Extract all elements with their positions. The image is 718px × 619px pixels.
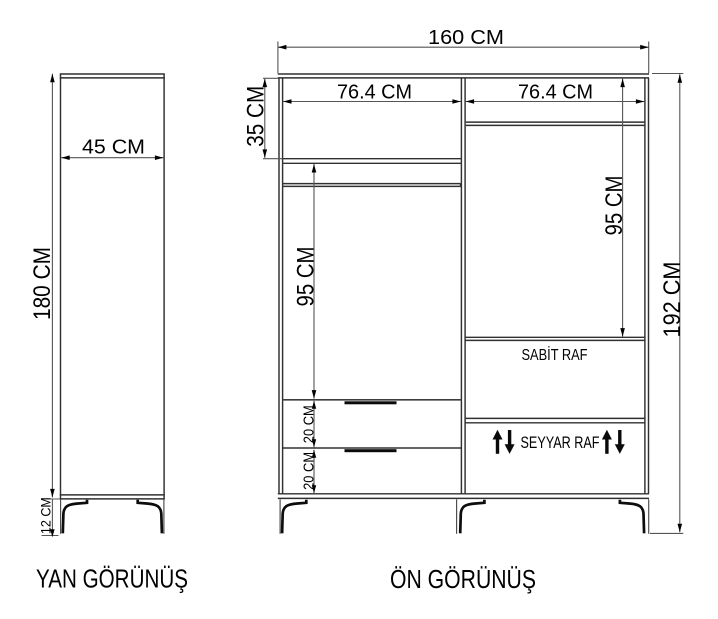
svg-text:SABİT RAF: SABİT RAF (522, 345, 588, 364)
svg-text:95 CM: 95 CM (293, 247, 320, 307)
svg-text:YAN GÖRÜNÜŞ: YAN GÖRÜNÜŞ (36, 564, 188, 594)
svg-text:ÖN GÖRÜNÜŞ: ÖN GÖRÜNÜŞ (390, 564, 536, 594)
svg-text:95 CM: 95 CM (601, 176, 628, 236)
svg-text:192 CM: 192 CM (659, 262, 686, 338)
svg-text:20 CM: 20 CM (301, 405, 318, 443)
svg-text:180 CM: 180 CM (29, 247, 56, 320)
svg-text:12 CM: 12 CM (38, 497, 54, 534)
svg-text:45 CM: 45 CM (82, 137, 145, 159)
svg-text:35 CM: 35 CM (242, 86, 269, 147)
svg-text:SEYYAR RAF: SEYYAR RAF (521, 433, 600, 452)
svg-text:76.4 CM: 76.4 CM (518, 82, 593, 104)
svg-text:20 CM: 20 CM (301, 452, 318, 490)
svg-text:76.4 CM: 76.4 CM (337, 82, 412, 104)
svg-text:160 CM: 160 CM (428, 27, 504, 49)
